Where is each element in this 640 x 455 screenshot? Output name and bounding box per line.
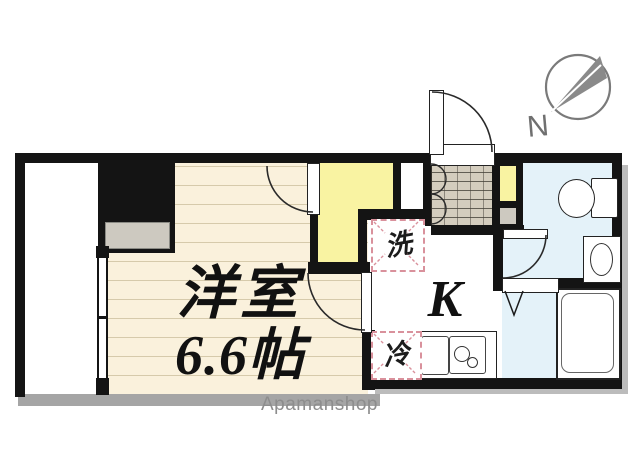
washbasin-bowl [590,243,613,276]
washroom-door-leaf [503,229,548,239]
toilet-tank [591,178,618,218]
refrigerator-label: 冷 [381,340,412,371]
shoe-cabinet [500,166,516,201]
pillar-block [105,222,170,249]
room-size-label: 6.6帖 [138,326,342,388]
wall [96,378,109,395]
closet-door-leaf [307,163,320,215]
meter-box [500,208,516,224]
front-door-leaf [429,90,444,155]
bathtub-inner [561,293,614,373]
stove-burner [467,357,478,368]
entrance-tile-floor [431,162,494,227]
closet [318,163,393,209]
wall [423,157,431,226]
wall [15,153,433,163]
kitchen-label: K [420,270,470,329]
closet-column [318,209,358,262]
kitchen-door-leaf [361,272,372,333]
refrigerator-space: 冷 [371,331,422,380]
toilet-bowl [558,179,595,218]
washing-machine-label: 洗 [382,230,413,261]
watermark: Apamanshop [261,394,378,416]
wall [15,153,25,397]
pipe-space [401,160,423,209]
wall [310,212,318,264]
window-center-mark [97,316,108,319]
wall-shadow [622,165,628,391]
wall [393,157,401,209]
floorplan-canvas: 洗 冷 N 洋室 6.6帖 K Apamanshop [0,0,640,455]
washing-machine-space: 洗 [371,219,425,272]
north-label: N [519,108,558,145]
balcony [25,163,98,395]
wall [490,153,622,163]
bath-folding-door-sill [502,278,559,293]
kitchen-sink [421,336,449,375]
wall [96,246,109,258]
room-name-label: 洋室 [150,264,330,325]
